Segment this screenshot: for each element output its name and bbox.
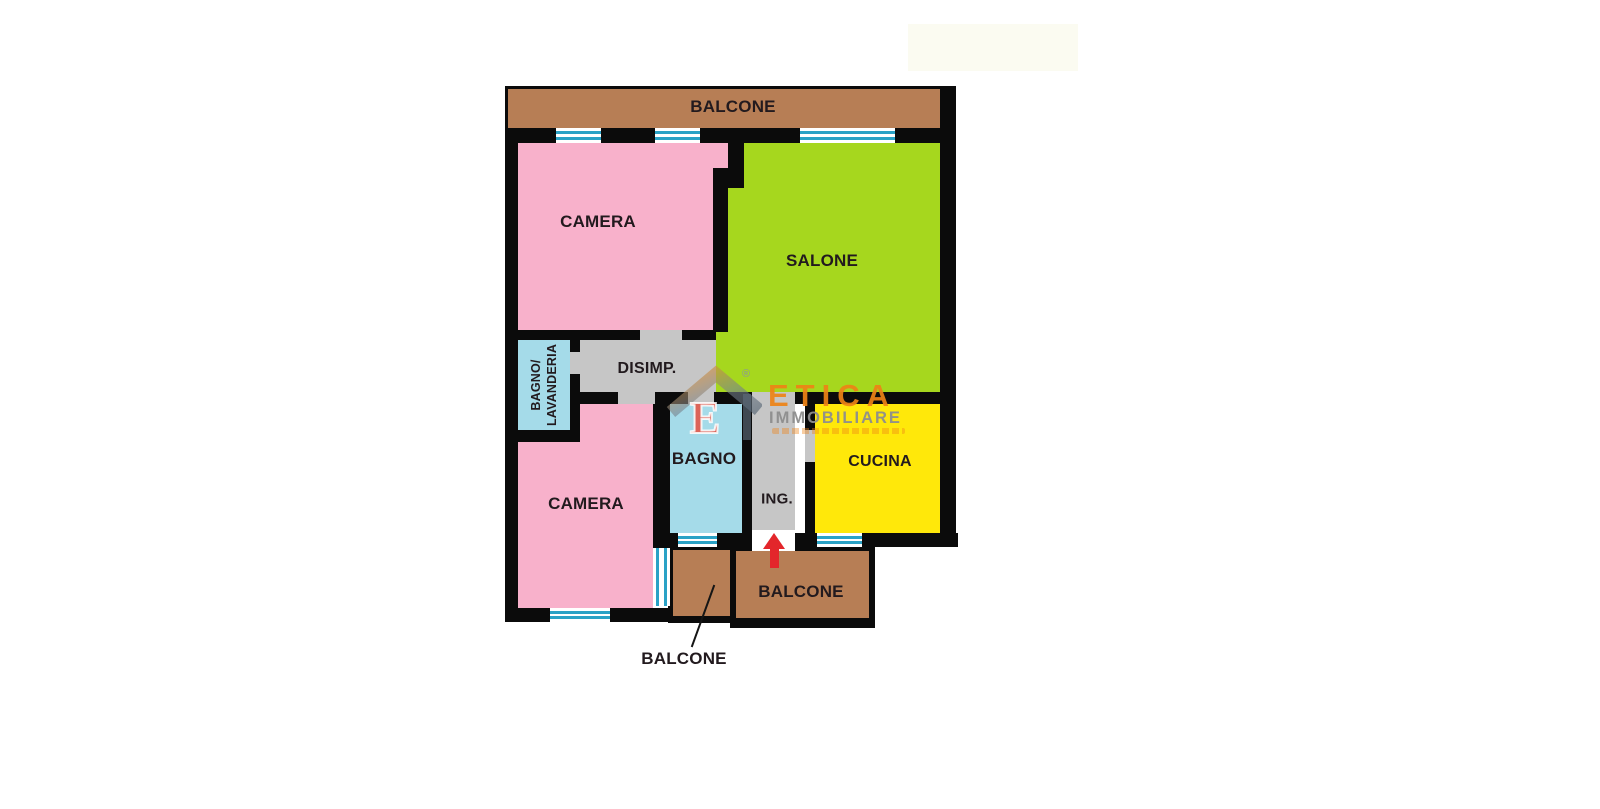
wall-segment bbox=[742, 398, 752, 533]
wall-segment bbox=[505, 330, 716, 340]
label-camera-bottom: CAMERA bbox=[548, 494, 624, 514]
wall-segment bbox=[653, 392, 670, 548]
label-bagno-lavanderia-line1: BAGNO/ bbox=[528, 344, 544, 426]
window bbox=[550, 608, 610, 622]
room-salone bbox=[716, 332, 728, 392]
window bbox=[817, 533, 862, 547]
label-balcone-big: BALCONE bbox=[758, 582, 843, 602]
wall-segment bbox=[505, 128, 518, 622]
room-ingresso bbox=[752, 392, 795, 533]
door-opening bbox=[618, 392, 655, 404]
door-opening bbox=[688, 392, 714, 404]
door-opening bbox=[570, 352, 580, 374]
wall-segment bbox=[805, 462, 815, 535]
faint-artifact bbox=[908, 24, 1078, 71]
label-balcone-top: BALCONE bbox=[690, 97, 775, 117]
label-ingresso: ING. bbox=[761, 491, 793, 508]
room-salone bbox=[728, 188, 744, 392]
window bbox=[678, 533, 717, 547]
floor-plan: BALCONE CAMERA SALONE DISIMP. CAMERA BAG… bbox=[0, 0, 1600, 809]
entrance-arrow-icon bbox=[763, 533, 785, 549]
wall-segment bbox=[610, 608, 670, 622]
wall-segment bbox=[505, 430, 580, 442]
wall-segment bbox=[505, 86, 956, 89]
door-opening bbox=[640, 330, 682, 340]
label-camera-top: CAMERA bbox=[560, 212, 636, 232]
wall-segment bbox=[713, 188, 728, 332]
label-bagno: BAGNO bbox=[672, 449, 736, 469]
wall-segment bbox=[580, 392, 618, 404]
wall-segment bbox=[713, 168, 744, 188]
label-balcone-small: BALCONE bbox=[641, 649, 726, 669]
wall-segment bbox=[570, 374, 580, 430]
window bbox=[653, 548, 670, 606]
window bbox=[556, 128, 601, 143]
room-camera-bottom bbox=[515, 442, 580, 608]
wall-segment bbox=[505, 86, 508, 128]
wall-segment bbox=[940, 86, 956, 547]
label-disimpegno: DISIMP. bbox=[618, 360, 677, 378]
wall-segment bbox=[570, 340, 580, 352]
window bbox=[655, 128, 700, 143]
room-camera-top bbox=[518, 143, 713, 330]
window bbox=[800, 128, 895, 143]
wall-segment bbox=[805, 404, 815, 430]
label-bagno-lavanderia-line2: LAVANDERIA bbox=[544, 344, 560, 426]
wall-segment bbox=[795, 392, 940, 404]
label-salone: SALONE bbox=[786, 251, 858, 271]
room-camera-top bbox=[713, 143, 728, 168]
entrance-arrow-icon bbox=[770, 549, 779, 568]
label-bagno-lavanderia: BAGNO/ LAVANDERIA bbox=[528, 344, 561, 426]
door-opening bbox=[805, 430, 815, 462]
wall-segment bbox=[505, 608, 550, 622]
label-cucina: CUCINA bbox=[848, 453, 911, 471]
